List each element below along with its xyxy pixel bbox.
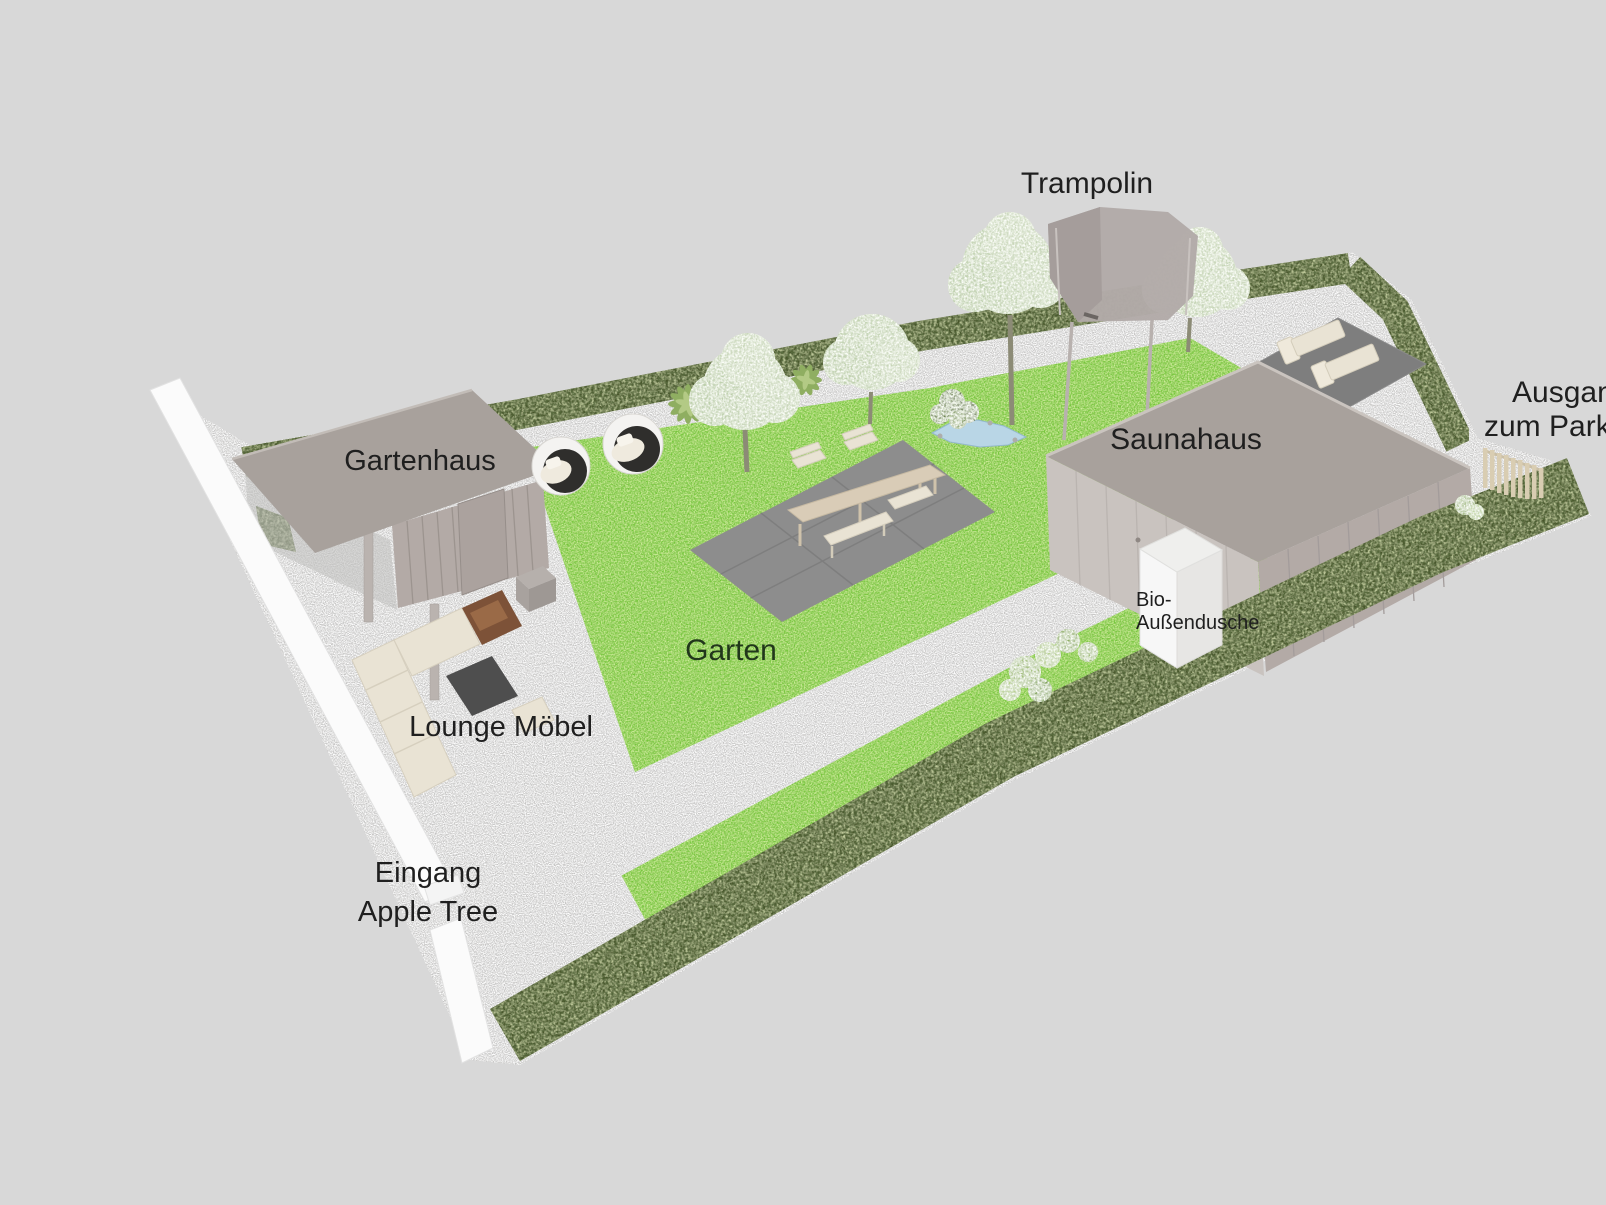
label-garten: Garten xyxy=(685,634,777,667)
label-lounge-moebel: Lounge Möbel xyxy=(409,711,593,743)
egg-chair xyxy=(603,414,663,474)
label-gartenhaus: Gartenhaus xyxy=(344,445,496,477)
tree-trunk xyxy=(870,392,871,424)
label-ausgang-line1: Ausgang xyxy=(1512,376,1606,409)
label-eingang-line2: Apple Tree xyxy=(358,896,498,928)
pebble xyxy=(938,434,943,439)
sauna-door-handle xyxy=(1136,538,1141,543)
garden-plan-scene: Trampolin Gartenhaus Saunahaus Garten Lo… xyxy=(0,0,1606,1205)
tree-trunk xyxy=(745,430,747,472)
label-shower-line2: Außendusche xyxy=(1136,612,1259,634)
label-trampolin: Trampolin xyxy=(1021,167,1153,200)
gartenhaus-door xyxy=(458,489,508,595)
tree-trunk xyxy=(1010,315,1012,425)
tree-trunk xyxy=(1188,318,1190,352)
label-shower-line1: Bio- xyxy=(1136,589,1172,611)
garden-plan-rendering: Trampolin Gartenhaus Saunahaus Garten Lo… xyxy=(0,0,1606,1205)
pebble xyxy=(988,421,993,426)
label-saunahaus: Saunahaus xyxy=(1110,423,1262,456)
pebble xyxy=(1013,438,1018,443)
egg-chair xyxy=(532,437,590,495)
label-ausgang-line2: zum Parkpl xyxy=(1484,410,1606,443)
label-eingang-line1: Eingang xyxy=(375,857,481,889)
